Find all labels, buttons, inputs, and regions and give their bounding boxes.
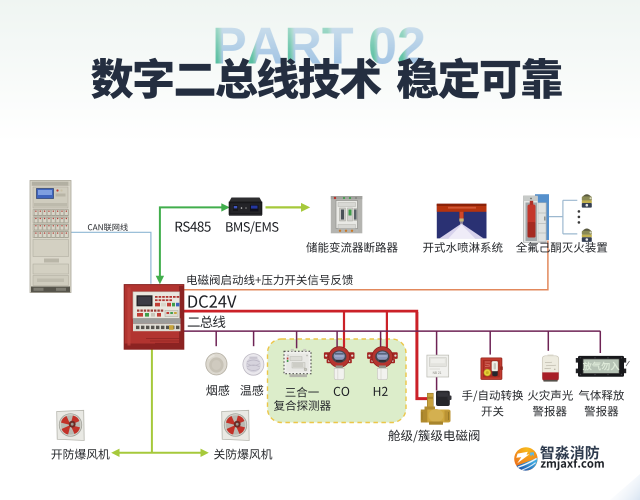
svg-text:NB 21: NB 21 xyxy=(433,371,442,375)
